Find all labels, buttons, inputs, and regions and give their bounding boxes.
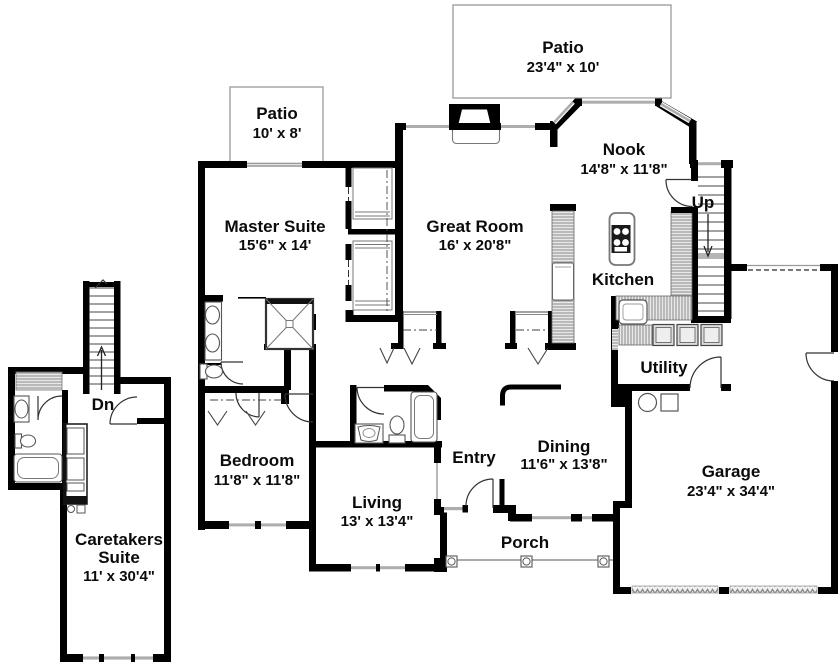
svg-text:Porch: Porch (501, 533, 549, 552)
svg-text:Master Suite: Master Suite (224, 217, 325, 236)
svg-text:13' x 13'4": 13' x 13'4" (341, 513, 414, 530)
svg-text:Living: Living (352, 493, 402, 512)
svg-text:Up: Up (692, 193, 715, 212)
svg-text:Patio: Patio (256, 104, 298, 123)
svg-text:Nook: Nook (603, 140, 646, 159)
svg-text:11' x 30'4": 11' x 30'4" (83, 568, 155, 585)
svg-text:16' x 20'8": 16' x 20'8" (439, 237, 512, 254)
svg-text:23'4" x 10': 23'4" x 10' (527, 59, 600, 76)
svg-text:Caretakers: Caretakers (75, 530, 163, 549)
svg-text:Bedroom: Bedroom (220, 451, 295, 470)
svg-text:Kitchen: Kitchen (592, 270, 654, 289)
svg-text:Utility: Utility (640, 358, 688, 377)
svg-text:Entry: Entry (452, 448, 496, 467)
svg-text:23'4" x 34'4": 23'4" x 34'4" (687, 483, 775, 500)
svg-text:Patio: Patio (542, 38, 584, 57)
svg-text:Great Room: Great Room (426, 217, 523, 236)
svg-text:15'6" x 14': 15'6" x 14' (239, 237, 312, 254)
svg-text:Suite: Suite (98, 548, 140, 567)
svg-text:Dn: Dn (92, 395, 115, 414)
svg-text:11'6" x 13'8": 11'6" x 13'8" (520, 456, 607, 473)
svg-text:10' x 8': 10' x 8' (253, 125, 302, 142)
svg-text:Garage: Garage (702, 462, 761, 481)
svg-text:11'8" x 11'8": 11'8" x 11'8" (214, 472, 300, 489)
svg-text:14'8" x 11'8": 14'8" x 11'8" (580, 161, 667, 178)
svg-text:Dining: Dining (538, 437, 591, 456)
